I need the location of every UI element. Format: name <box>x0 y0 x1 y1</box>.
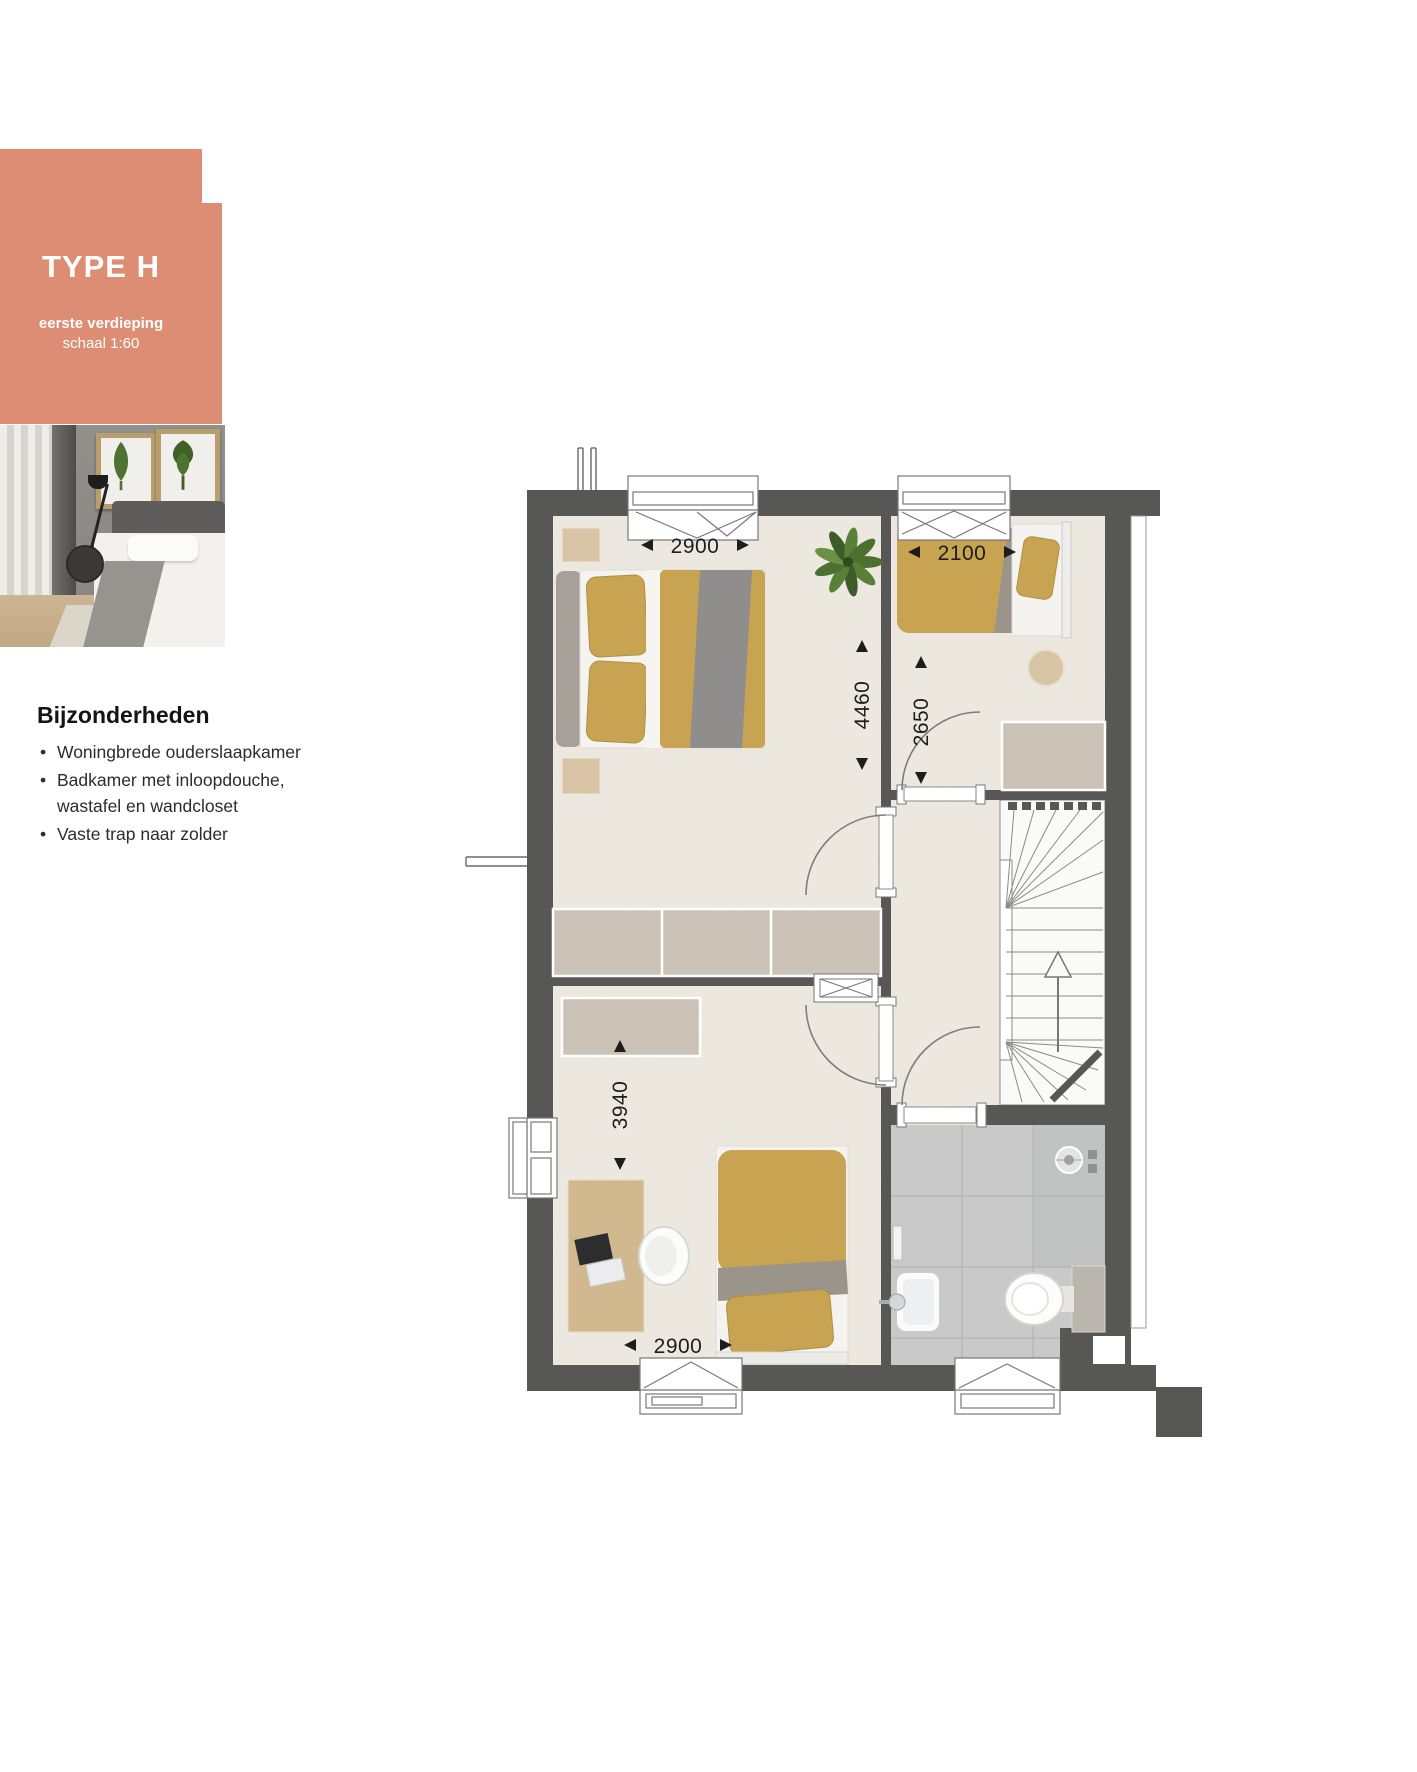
side-pipe-icon <box>466 857 527 866</box>
vent-window-icon <box>814 974 878 1002</box>
window-bedroom3-bottom <box>640 1358 742 1414</box>
desk-chair <box>639 1227 689 1285</box>
window-bedroom3-side <box>509 1118 557 1198</box>
photo-pillow <box>128 535 198 561</box>
brochure-page: TYPE H eerste verdieping schaal 1:60 Bij… <box>0 0 1417 1772</box>
bedroom-photo <box>0 425 225 647</box>
details-list: Woningbrede ouderslaapkamer Badkamer met… <box>37 739 337 847</box>
leaf-picture-icon <box>156 429 220 511</box>
badge-title: TYPE H <box>0 249 202 285</box>
window-bedroom2 <box>898 476 1010 540</box>
details-heading: Bijzonderheden <box>37 702 337 729</box>
photo-headboard <box>112 501 225 537</box>
svg-text:2650: 2650 <box>910 698 933 747</box>
window-bathroom-bottom <box>955 1358 1060 1414</box>
wardrobe-master <box>553 909 881 976</box>
duct-shaft <box>1093 1336 1125 1364</box>
list-item: Badkamer met inloopdouche, wastafel en w… <box>57 767 337 819</box>
details-section: Bijzonderheden Woningbrede ouderslaapkam… <box>37 702 337 849</box>
type-badge: TYPE H eerste verdieping schaal 1:60 <box>0 149 222 424</box>
svg-text:2900: 2900 <box>654 1335 703 1358</box>
door-leaf-bathroom <box>904 1107 976 1123</box>
bedroom3-bed <box>716 1146 848 1364</box>
floorplan: 2900 2100 4460 2650 3940 <box>440 380 1220 1460</box>
nightstand <box>562 528 600 562</box>
master-bed <box>556 570 765 748</box>
svg-text:3940: 3940 <box>609 1081 632 1130</box>
closet-bedroom3 <box>562 998 700 1056</box>
party-wall-strip <box>1131 516 1146 1328</box>
door-leaf-master <box>879 815 893 889</box>
side-table <box>1028 650 1064 686</box>
svg-text:2100: 2100 <box>938 542 987 565</box>
nightstand <box>562 758 600 794</box>
svg-text:4460: 4460 <box>851 681 874 730</box>
badge-floor-label: eerste verdieping <box>0 315 202 332</box>
stair-railing <box>1000 860 1012 1060</box>
list-item: Vaste trap naar zolder <box>57 821 337 847</box>
photo-nightstand <box>66 545 104 583</box>
closet-bedroom2 <box>1002 722 1105 790</box>
badge-scale-label: schaal 1:60 <box>0 335 202 352</box>
radiator <box>893 1226 902 1260</box>
chimney-pipes-icon <box>578 448 596 490</box>
list-item: Woningbrede ouderslaapkamer <box>57 739 337 765</box>
desk-with-laptop <box>568 1180 644 1332</box>
door-leaf-bedroom2 <box>904 787 976 801</box>
window-master <box>628 476 758 540</box>
door-leaf-bedroom3 <box>879 1005 893 1081</box>
photo-bed <box>94 533 225 647</box>
svg-text:2900: 2900 <box>671 535 720 558</box>
